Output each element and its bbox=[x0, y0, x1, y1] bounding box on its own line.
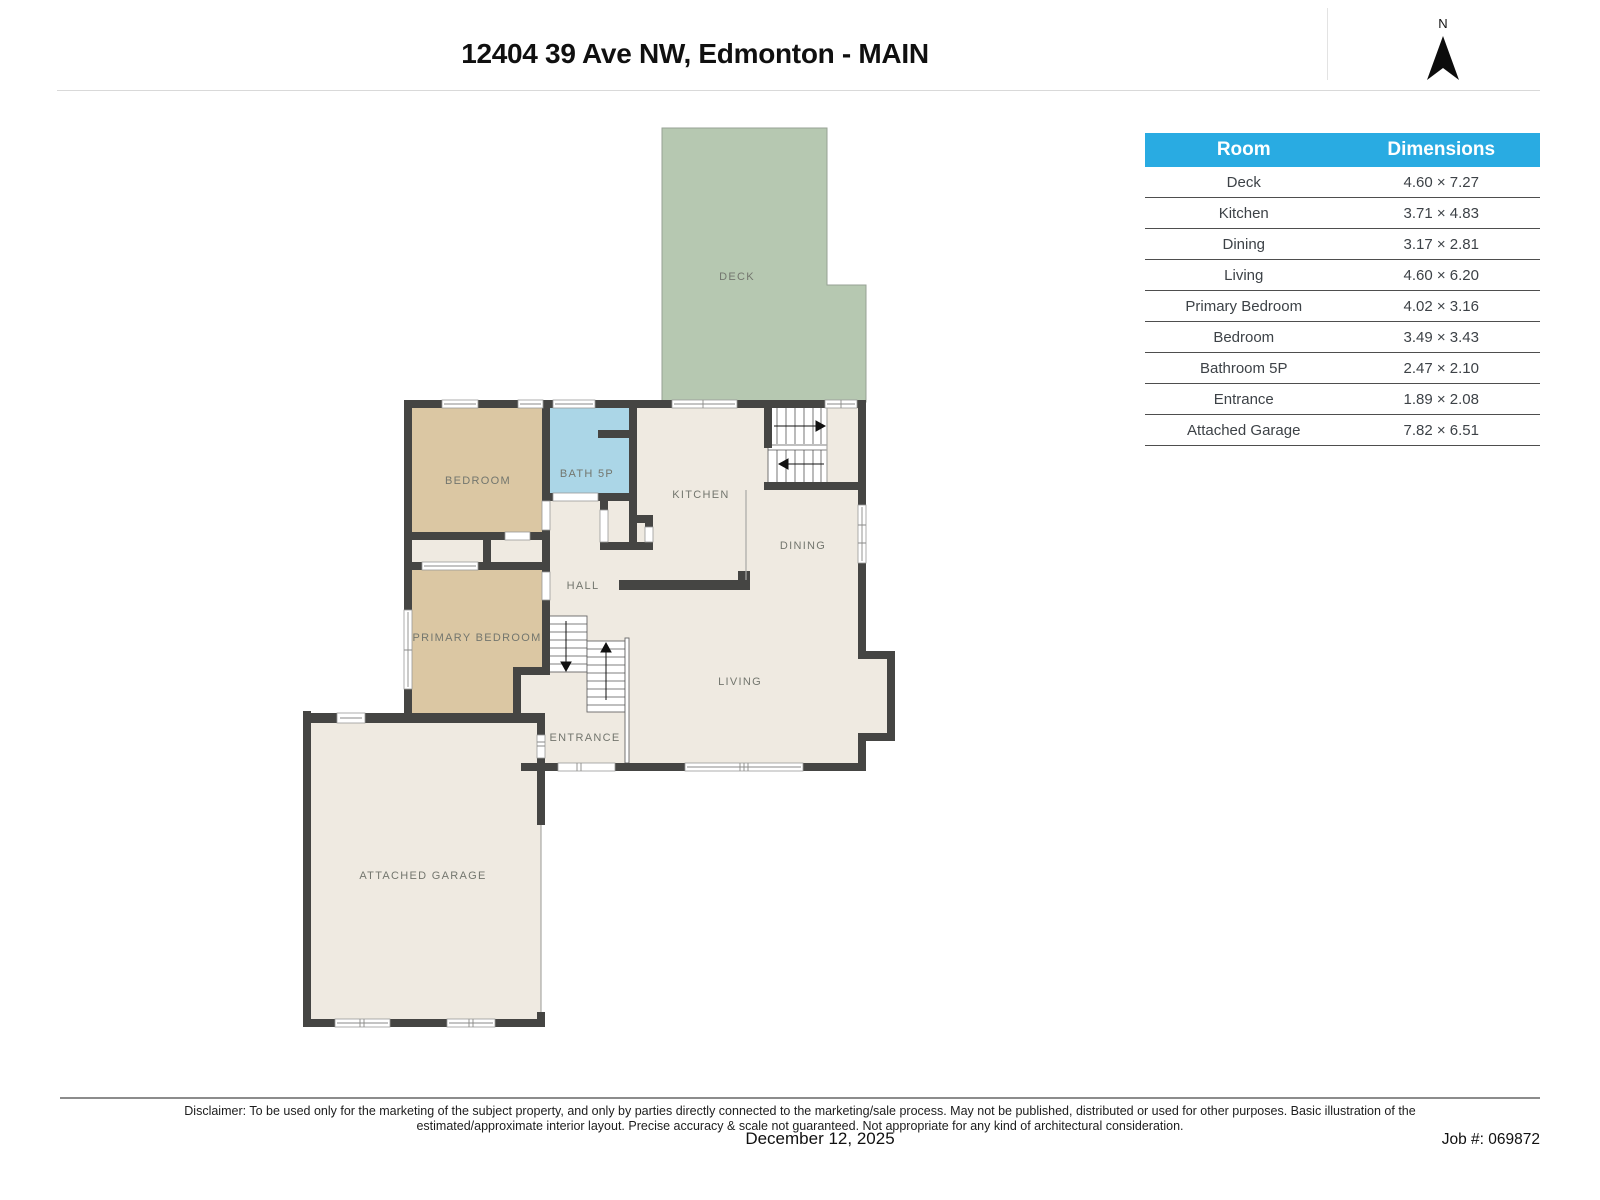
bathroom-floor-area bbox=[546, 406, 633, 497]
bedroom-floor-area bbox=[410, 406, 546, 536]
column-header-dimensions: Dimensions bbox=[1343, 139, 1541, 161]
living-label: LIVING bbox=[718, 676, 762, 688]
room-name-cell: Kitchen bbox=[1145, 205, 1343, 222]
table-row: Living 4.60 × 6.20 bbox=[1145, 260, 1540, 291]
print-date: December 12, 2025 bbox=[100, 1129, 1540, 1149]
bedroom-label: BEDROOM bbox=[445, 475, 511, 487]
table-row: Dining 3.17 × 2.81 bbox=[1145, 229, 1540, 260]
table-row: Entrance 1.89 × 2.08 bbox=[1145, 384, 1540, 415]
deck-label: DECK bbox=[719, 271, 755, 283]
room-name-cell: Attached Garage bbox=[1145, 422, 1343, 439]
north-arrow-icon: N bbox=[1423, 14, 1463, 86]
deck-area bbox=[662, 128, 866, 402]
room-dimensions-cell: 3.17 × 2.81 bbox=[1343, 236, 1541, 253]
room-name-cell: Entrance bbox=[1145, 391, 1343, 408]
table-header: Room Dimensions bbox=[1145, 133, 1540, 167]
room-name-cell: Bathroom 5P bbox=[1145, 360, 1343, 377]
room-name-cell: Bedroom bbox=[1145, 329, 1343, 346]
table-row: Kitchen 3.71 × 4.83 bbox=[1145, 198, 1540, 229]
bath-label: BATH 5P bbox=[560, 468, 614, 480]
table-row: Deck 4.60 × 7.27 bbox=[1145, 167, 1540, 198]
compass-divider bbox=[1327, 8, 1328, 80]
column-header-room: Room bbox=[1145, 139, 1343, 161]
table-row: Primary Bedroom 4.02 × 3.16 bbox=[1145, 291, 1540, 322]
room-name-cell: Living bbox=[1145, 267, 1343, 284]
room-dimensions-cell: 4.02 × 3.16 bbox=[1343, 298, 1541, 315]
job-number: Job #: 069872 bbox=[1442, 1131, 1540, 1149]
floorplan-page: 12404 39 Ave NW, Edmonton - MAIN N Room … bbox=[0, 0, 1600, 1200]
room-name-cell: Deck bbox=[1145, 174, 1343, 191]
north-arrow-glyph bbox=[1427, 36, 1459, 80]
entrance-label: ENTRANCE bbox=[550, 732, 621, 744]
table-row: Bathroom 5P 2.47 × 2.10 bbox=[1145, 353, 1540, 384]
page-title: 12404 39 Ave NW, Edmonton - MAIN bbox=[0, 38, 1390, 70]
room-dimensions-cell: 3.71 × 4.83 bbox=[1343, 205, 1541, 222]
north-label: N bbox=[1438, 16, 1447, 31]
room-dimensions-cell: 3.49 × 3.43 bbox=[1343, 329, 1541, 346]
table-row: Bedroom 3.49 × 3.43 bbox=[1145, 322, 1540, 353]
room-dimensions-table: Room Dimensions Deck 4.60 × 7.27 Kitchen… bbox=[1145, 133, 1540, 446]
room-name-cell: Dining bbox=[1145, 236, 1343, 253]
attached-garage-label: ATTACHED GARAGE bbox=[359, 870, 486, 882]
primary-bedroom-label: PRIMARY BEDROOM bbox=[412, 632, 541, 644]
stair-railing bbox=[625, 638, 629, 763]
hall-label: HALL bbox=[567, 580, 600, 592]
room-dimensions-cell: 7.82 × 6.51 bbox=[1343, 422, 1541, 439]
kitchen-label: KITCHEN bbox=[672, 489, 729, 501]
room-dimensions-cell: 4.60 × 6.20 bbox=[1343, 267, 1541, 284]
dining-label: DINING bbox=[780, 540, 826, 552]
room-dimensions-cell: 2.47 × 2.10 bbox=[1343, 360, 1541, 377]
room-name-cell: Primary Bedroom bbox=[1145, 298, 1343, 315]
footer-divider bbox=[60, 1097, 1540, 1099]
room-dimensions-cell: 1.89 × 2.08 bbox=[1343, 391, 1541, 408]
table-row: Attached Garage 7.82 × 6.51 bbox=[1145, 415, 1540, 446]
table-body: Deck 4.60 × 7.27 Kitchen 3.71 × 4.83 Din… bbox=[1145, 167, 1540, 446]
header-divider bbox=[57, 90, 1540, 91]
garage-floor-area bbox=[307, 715, 541, 1023]
room-dimensions-cell: 4.60 × 7.27 bbox=[1343, 174, 1541, 191]
floorplan-drawing: DECK BEDROOM BATH 5P KITCHEN DINING HALL… bbox=[290, 115, 910, 1040]
